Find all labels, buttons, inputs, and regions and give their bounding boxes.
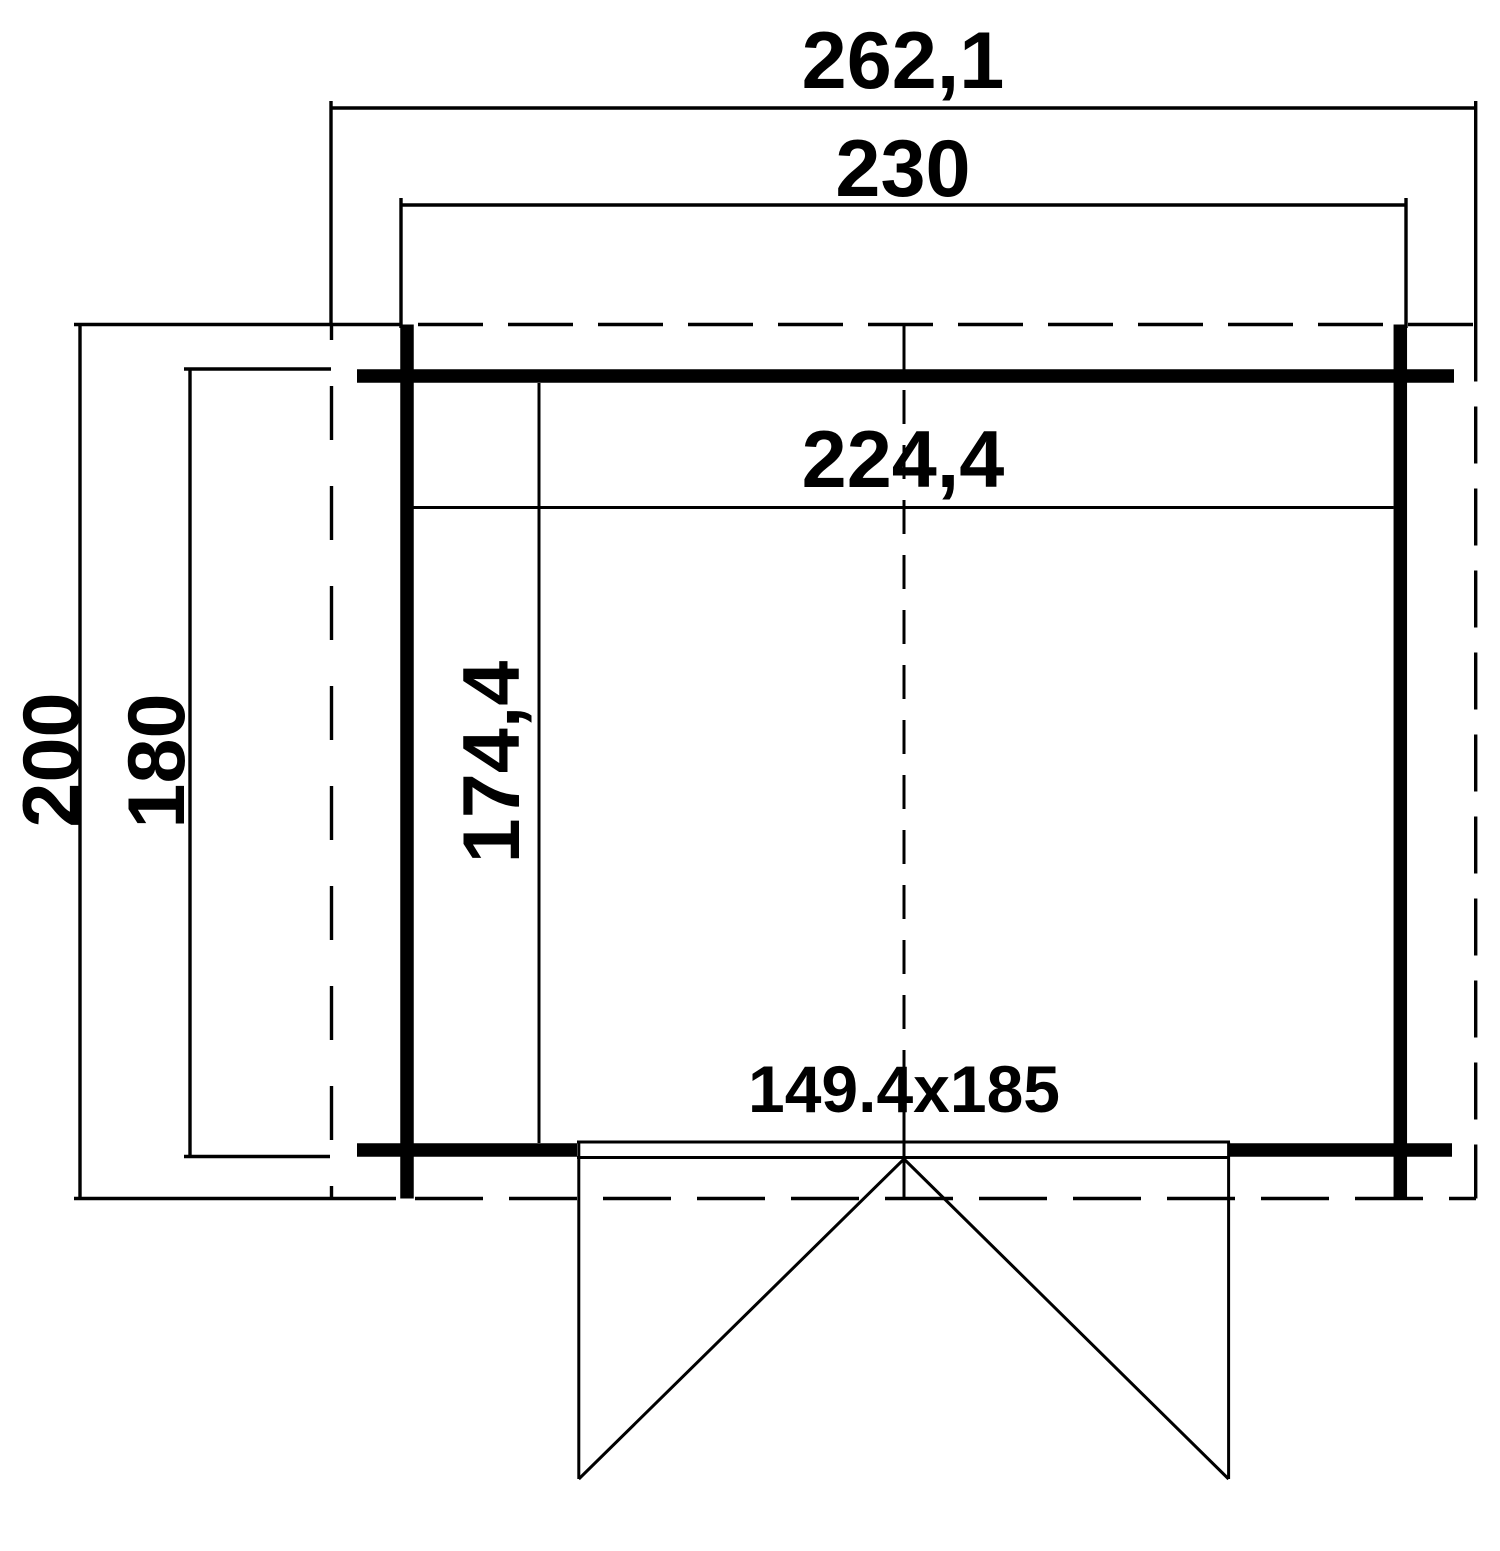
svg-text:174,4: 174,4 [447, 661, 537, 864]
svg-text:200: 200 [7, 692, 97, 827]
svg-text:224,4: 224,4 [802, 415, 1005, 505]
svg-text:262,1: 262,1 [802, 16, 1005, 106]
svg-text:230: 230 [835, 124, 970, 214]
